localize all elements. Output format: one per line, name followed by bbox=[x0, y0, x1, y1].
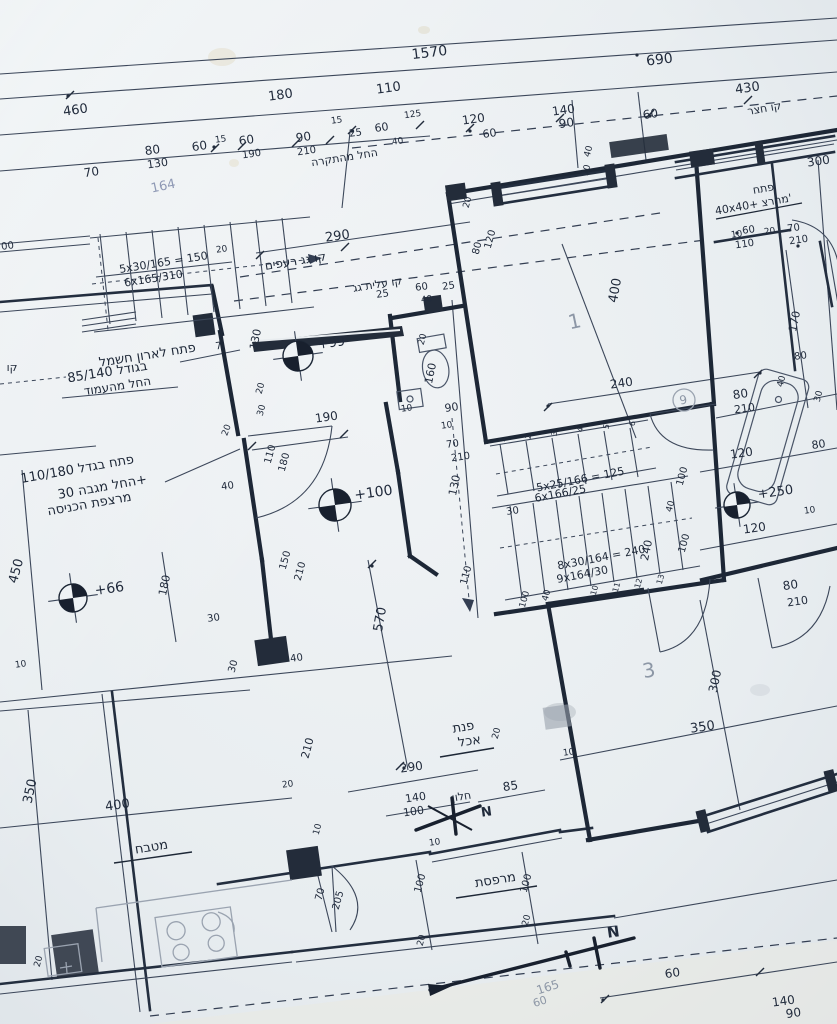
dim-label: 20 bbox=[763, 226, 776, 238]
dim-label: 40 bbox=[420, 294, 433, 306]
dim-label: 30 bbox=[207, 612, 221, 625]
dim-label: 70 bbox=[83, 164, 100, 180]
dim-label: 70 bbox=[446, 438, 460, 451]
floor-plan-photo: 1570 690 460 180 110 430 70 80 130 60 15… bbox=[0, 0, 837, 1024]
dim-label: 20 bbox=[215, 244, 228, 256]
dim-label: 60 bbox=[482, 126, 498, 141]
dim-label: 80 bbox=[811, 437, 827, 452]
dim-label: 10 bbox=[440, 420, 453, 432]
dim-label: 90 bbox=[295, 129, 312, 145]
dim-label: 10 bbox=[428, 837, 441, 849]
dim-label: 80 bbox=[732, 386, 749, 402]
dim-label: 40 bbox=[221, 480, 235, 493]
dim-label: 20 bbox=[281, 779, 294, 791]
dim-label: 60 bbox=[191, 138, 208, 154]
dim-label: 60 bbox=[374, 120, 390, 135]
north-letter-window: N bbox=[480, 804, 493, 820]
dim-label: 10 bbox=[400, 403, 413, 415]
dim-label: 60 bbox=[238, 132, 255, 148]
dim-label: 10 bbox=[803, 505, 816, 517]
dim-label: 90 bbox=[785, 1005, 802, 1021]
dim-label: 60 bbox=[742, 224, 756, 237]
dim-label: 80 bbox=[144, 142, 161, 158]
dim-label: 25 bbox=[442, 280, 456, 293]
dim-label: 40 bbox=[391, 136, 404, 148]
dim-label: 90 bbox=[444, 400, 460, 415]
dim-label: 25 bbox=[349, 127, 363, 140]
dim-label: 80 bbox=[794, 350, 808, 363]
dim-label: 80 bbox=[782, 577, 799, 593]
line-label-partial: קו bbox=[7, 361, 18, 374]
dim-label: 15 bbox=[330, 115, 343, 126]
dim-label: 40 bbox=[290, 652, 304, 665]
dim-label: 10 bbox=[14, 659, 27, 671]
north-letter: N bbox=[606, 922, 621, 942]
dim-label: 60 bbox=[664, 965, 681, 981]
dim-label: 30 bbox=[506, 505, 520, 518]
dim-label: 90 bbox=[558, 115, 575, 131]
dim-label: 60 bbox=[642, 106, 659, 122]
dim-label: 690 bbox=[645, 50, 673, 69]
dim-label: 00 bbox=[1, 240, 15, 253]
dim-label: 70 bbox=[787, 222, 801, 235]
dim-label: 15 bbox=[214, 134, 227, 145]
floor-plan: 1570 690 460 180 110 430 70 80 130 60 15… bbox=[0, 0, 837, 1024]
dim-label: 85 bbox=[502, 778, 519, 794]
dim-label: 60 bbox=[415, 281, 429, 294]
dim-label: 10 bbox=[562, 747, 575, 759]
